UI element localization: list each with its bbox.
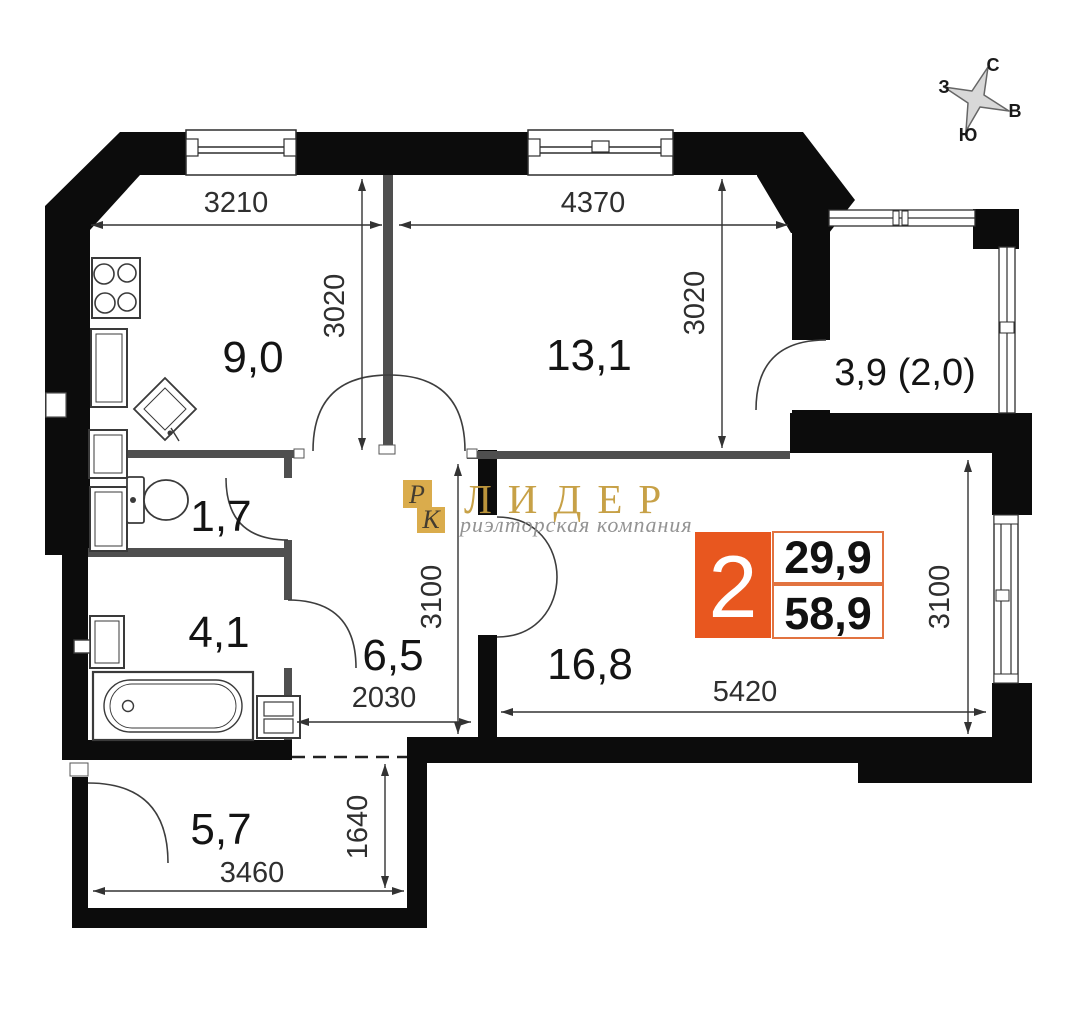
entry-wall-left <box>72 777 88 928</box>
dim-entry-width: 3460 <box>220 857 285 889</box>
wall-corner-block-se <box>858 737 1032 783</box>
wall-left-lower <box>62 555 88 760</box>
entry-door-arc <box>88 783 168 863</box>
bathroom-door-arc <box>288 600 356 668</box>
dim-hall-width: 2030 <box>352 682 417 714</box>
dim-kitchen-depth: 3020 <box>319 274 351 339</box>
dim-living-depth-left: 3100 <box>416 565 448 630</box>
wall-right-lower <box>992 683 1032 737</box>
wc-bath-east-wall <box>284 540 292 600</box>
bathroom-bottom-wall <box>62 740 292 760</box>
badge-total-area: 58,9 <box>784 588 872 639</box>
wall-left-upper <box>45 228 90 555</box>
stove-icon <box>92 258 140 318</box>
kitchen-door-arc <box>313 375 389 451</box>
bathroom-area-label: 4,1 <box>188 608 249 657</box>
room-area-label: 13,1 <box>546 331 632 380</box>
compass-west: З <box>938 77 949 97</box>
watermark-initial-2: К <box>421 505 441 534</box>
dim-living-depth-right: 3100 <box>924 565 956 630</box>
toilet-icon <box>127 477 188 523</box>
kitchen-window <box>186 130 296 175</box>
wall-top-c <box>672 132 758 175</box>
living-room-window <box>994 515 1018 683</box>
compass-east: В <box>1009 101 1022 121</box>
watermark: Р К ЛИДЕР риэлторская компания <box>403 476 693 537</box>
dim-living-width: 5420 <box>713 676 778 708</box>
kitchen-area-label: 9,0 <box>222 333 283 382</box>
balcony-area-label: 3,9 (2,0) <box>834 352 976 394</box>
room-door-arc <box>389 375 465 451</box>
entry-area-label: 5,7 <box>190 805 251 854</box>
floor-plan-page: 3210 4370 3020 3020 3100 3100 2030 5420 … <box>0 0 1079 1012</box>
entry-door-cap <box>70 763 88 776</box>
hall-wall-lower <box>478 635 497 740</box>
kitchen-cabinets <box>89 329 127 551</box>
balcony-door-arc <box>756 340 826 410</box>
kitchen-wall-end-cap <box>294 449 304 458</box>
dim-kitchen-width: 3210 <box>204 187 269 219</box>
wc-area-label: 1,7 <box>190 492 251 541</box>
wall-top-a <box>140 132 186 175</box>
washer-icon <box>257 696 300 738</box>
fixtures <box>74 258 300 740</box>
wall-top-b <box>296 132 528 175</box>
balcony-bottom-band <box>790 413 1032 453</box>
living-wall-end-cap <box>467 449 477 458</box>
badge-living-area: 29,9 <box>784 532 872 583</box>
dim-room-width: 4370 <box>561 187 626 219</box>
floor-plan-drawing: 3210 4370 3020 3020 3100 3100 2030 5420 … <box>0 0 1079 1012</box>
living-room-area-label: 16,8 <box>547 640 633 689</box>
partition-kitchen-room <box>383 175 393 451</box>
wall-niche <box>46 393 66 417</box>
badge-room-count: 2 <box>709 537 758 636</box>
watermark-tagline: риэлторская компания <box>458 512 693 537</box>
entry-wall-right <box>407 756 427 928</box>
entry-wall-bottom <box>72 908 427 928</box>
room-window <box>528 130 673 175</box>
compass-south: Ю <box>959 125 978 145</box>
living-north-wall <box>467 451 790 459</box>
wc-east-stub <box>284 450 292 478</box>
compass-star-icon <box>944 67 1009 131</box>
hallway-area-label: 6,5 <box>362 631 423 680</box>
dim-entry-depth: 1640 <box>342 795 374 860</box>
wall-bottom-living <box>407 737 862 763</box>
kitchen-sink-icon <box>134 378 196 441</box>
balcony-corner-block <box>973 209 1019 249</box>
balcony-top-window <box>829 210 975 226</box>
bathtub-icon <box>93 672 253 740</box>
dim-room-depth: 3020 <box>679 271 711 336</box>
wall-right-upper <box>992 453 1032 515</box>
info-badge: 2 29,9 58,9 <box>695 532 883 639</box>
balcony-pier-upper <box>792 228 830 340</box>
compass-north: С <box>987 55 1000 75</box>
compass-rose: С В Ю З <box>938 55 1021 145</box>
partition-end-cap <box>379 445 395 454</box>
balcony-right-window <box>999 247 1015 413</box>
